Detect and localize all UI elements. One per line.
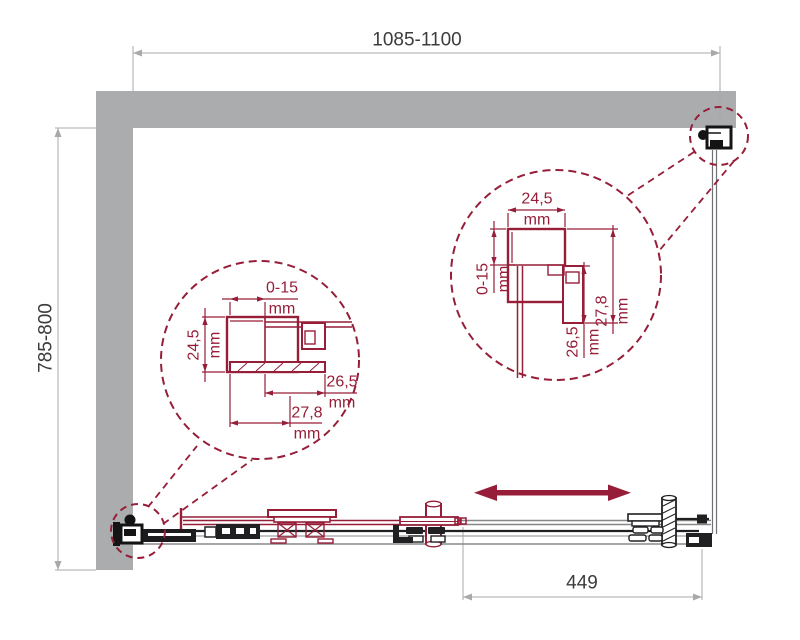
fixed-glass-panel (713, 150, 717, 534)
detail-right-left-dimension: 0-15 mm (476, 263, 513, 295)
wall-bracket-top-right (698, 127, 731, 148)
width-dimension-label: 1085-1100 (372, 31, 461, 50)
dimension-unit: mm (294, 427, 321, 443)
dimension-unit: mm (616, 298, 632, 325)
arrowhead-left-icon (133, 50, 142, 57)
slide-direction-arrow-icon (474, 485, 631, 502)
dimension-depth (55, 128, 97, 570)
dimension-value: 0-15 (476, 263, 492, 295)
detail-right-top-dimension: 24,5 mm (521, 192, 552, 229)
detail-left-top-dimension: 0-15 mm (266, 281, 298, 318)
dimension-unit: mm (497, 266, 513, 293)
dimension-unit: mm (208, 332, 224, 359)
dimension-value: 24,5 (187, 329, 203, 360)
arrowhead-left-icon (463, 594, 472, 601)
depth-dimension-label: 785-800 (37, 303, 56, 373)
dimension-unit: mm (587, 329, 603, 356)
track-guide-block (205, 524, 260, 539)
dimension-value: 26,5 (326, 375, 357, 391)
corner-fitting-bottom-right (686, 533, 712, 547)
dimension-value: 0-15 (266, 281, 298, 297)
detail-left-right-dimension: 26,5 mm (326, 375, 357, 412)
installation-diagram: 1085-1100 785-800 449 0-15 mm 24,5 mm 26… (0, 0, 800, 640)
roller-carriage-center (393, 501, 466, 547)
detail-left-bottom-dimension: 27,8 mm (291, 406, 322, 443)
dimension-unit: mm (269, 302, 296, 318)
arrowhead-up-icon (55, 128, 62, 137)
detail-right-right-dimension: 27,8 mm (595, 295, 632, 326)
top-wall (96, 91, 736, 128)
dimension-unit: mm (524, 213, 551, 229)
dimension-value: 27,8 (291, 406, 322, 422)
detail-left-left-dimension: 24,5 mm (187, 329, 224, 360)
dimension-unit: mm (329, 396, 356, 412)
arrowhead-down-icon (55, 561, 62, 570)
wall-bracket-bottom-left (113, 515, 196, 547)
arrowhead-right-icon (693, 594, 702, 601)
detail-right-mid-dimension: 26,5 mm (566, 326, 603, 357)
dimension-value: 26,5 (566, 326, 582, 357)
left-wall (96, 128, 133, 570)
roller-carriage-left (268, 510, 336, 543)
opening-dimension-label: 449 (566, 574, 598, 593)
arrowhead-right-icon (711, 50, 720, 57)
dimension-value: 24,5 (521, 192, 552, 208)
dimension-value: 27,8 (595, 295, 611, 326)
diagram-canvas (0, 0, 800, 640)
